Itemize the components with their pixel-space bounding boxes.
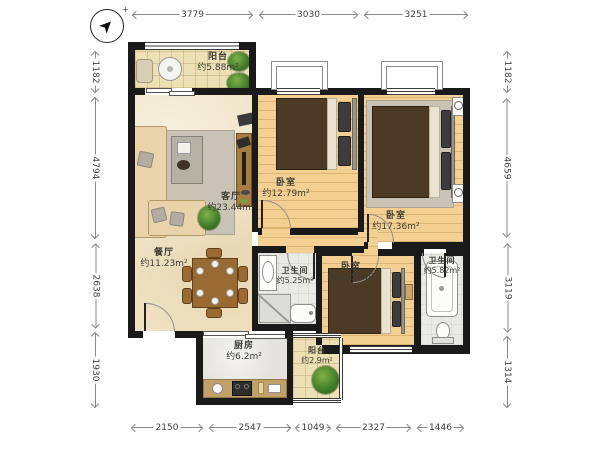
bed-pillow (338, 102, 351, 132)
wall-bedroom-right-bottom (364, 242, 368, 249)
lamp-icon (454, 101, 463, 110)
dim-bottom-1: 2150 (132, 422, 202, 434)
bed-pillow (441, 152, 451, 190)
dim-top-2: 3030 (260, 9, 357, 21)
room-label-bedroom-bottom: 卧室约10.51m² (322, 262, 380, 284)
room-label-balcony-bottom: 阳台约2.9m² (294, 346, 340, 366)
wall-hall-bath (252, 246, 286, 253)
coffee-table-tray (177, 142, 191, 154)
wall-kitchen-left (196, 331, 203, 405)
bay-window-inner (276, 66, 323, 90)
window-balcony-bottom-top (293, 333, 341, 338)
bay-window-inner (386, 66, 438, 90)
wall-kitchen-right (287, 331, 293, 405)
wall-bedrooms-divider (358, 95, 364, 232)
plate (226, 267, 234, 275)
utensil-holder (258, 382, 264, 394)
dim-left-3: 2638 (90, 245, 102, 328)
wall-top (320, 88, 387, 95)
sofa-pillow (137, 151, 155, 169)
wall-bedroom-mid-bottom (258, 228, 262, 235)
sofa-pillow (169, 211, 185, 227)
nightstand (405, 284, 413, 300)
compass-plus-mark: + (122, 5, 129, 14)
wall-bedroom-mid-bottom (290, 228, 358, 235)
washing-machine-drum (167, 66, 173, 72)
dim-right-2: 4659 (501, 100, 513, 237)
plate (211, 297, 219, 305)
window-balcony-bottom-bottom (293, 398, 341, 403)
bed-pillow (338, 136, 351, 166)
dim-left-1: 1182 (89, 52, 101, 92)
wall-bath-mid-bottom (252, 324, 322, 331)
kitchen-sliding-door (203, 331, 249, 336)
toilet-tank (432, 337, 454, 344)
room-label-bedroom-right: 卧室约17.36m² (368, 211, 424, 233)
dining-chair (238, 266, 248, 282)
room-label-living: 客厅约23.44m² (202, 192, 260, 214)
room-label-dining: 餐厅约11.23m² (134, 248, 194, 270)
kitchen-sink (212, 383, 223, 394)
bed-sheet (327, 98, 337, 170)
dining-chair (238, 288, 248, 304)
dining-chair (206, 248, 222, 258)
bed-headboard (352, 98, 357, 170)
dim-right-4: 1314 (501, 337, 513, 407)
dim-right-1: 1182 (501, 52, 513, 92)
bed-blanket (372, 106, 430, 198)
wall-entry (128, 331, 143, 338)
room-label-balcony-top: 阳台约5.88m² (186, 52, 250, 74)
dim-bottom-2: 2547 (210, 422, 290, 434)
bed-sheet (381, 268, 391, 334)
burner-icon (235, 384, 240, 389)
bed-pillow (441, 110, 451, 148)
wall-bedroom-right-bottom (392, 242, 463, 249)
kitchen-sliding-door (245, 334, 289, 339)
coffee-table-bowl (177, 160, 190, 170)
dim-top-1: 3779 (133, 9, 252, 21)
small-appliance (268, 384, 281, 393)
room-label-bath-mid: 卫生间约5.25m² (268, 266, 322, 286)
dim-bottom-5: 1446 (418, 422, 463, 434)
bed-headboard (401, 268, 405, 334)
burner-icon (244, 384, 249, 389)
dining-chair (182, 288, 192, 304)
drain-icon (439, 286, 444, 291)
plate (196, 267, 204, 275)
dim-bottom-3: 1049 (296, 422, 330, 434)
floor-plan-canvas: ➤ + 3779 3030 3251 2150 2547 1049 2327 1… (0, 0, 600, 450)
bed-pillow (392, 301, 401, 327)
window-balcony-top (135, 42, 249, 50)
compass-icon: ➤ (90, 9, 124, 43)
window-bedroom-mid (277, 88, 320, 95)
room-label-kitchen: 厨房约6.2m² (216, 341, 272, 363)
dim-right-3: 3119 (502, 245, 514, 332)
tub-faucet (309, 311, 313, 315)
wall-stub (135, 42, 145, 50)
room-label-bedroom-mid: 卧室约12.79m² (258, 178, 314, 200)
window-bedroom-right (387, 88, 435, 95)
wall-bath-right-top (446, 249, 470, 256)
bed-sheet (429, 106, 440, 198)
bed-blanket (276, 98, 328, 170)
plant-icon (312, 366, 339, 394)
dim-top-3: 3251 (365, 9, 467, 21)
wall-top (135, 88, 145, 95)
wall-kitchen-bottom (196, 398, 293, 405)
bed-pillow (392, 272, 401, 298)
room-label-bath-right: 卫生间约5.82m² (418, 256, 466, 276)
dim-left-4: 1930 (89, 333, 101, 407)
dim-left-2: 4794 (89, 98, 101, 238)
balcony-chair (136, 59, 153, 83)
lamp-icon (454, 188, 463, 197)
tv-icon (242, 152, 246, 185)
wall-right (463, 88, 470, 354)
dining-chair (206, 308, 222, 318)
dim-bottom-4: 2327 (337, 422, 410, 434)
wall-bedroom-bottom-top (378, 249, 424, 256)
wall-bath-left (252, 246, 258, 331)
wall-top (192, 88, 277, 95)
window-bedroom-bottom (350, 346, 412, 353)
sliding-door-panel (169, 91, 195, 96)
plate (226, 289, 234, 297)
compass-needle-icon: ➤ (96, 15, 118, 37)
plate (196, 289, 204, 297)
wall-left (128, 42, 135, 338)
wall-stub (239, 42, 249, 50)
plate (211, 260, 219, 268)
wall-bedroom-bottom-top (322, 249, 352, 256)
